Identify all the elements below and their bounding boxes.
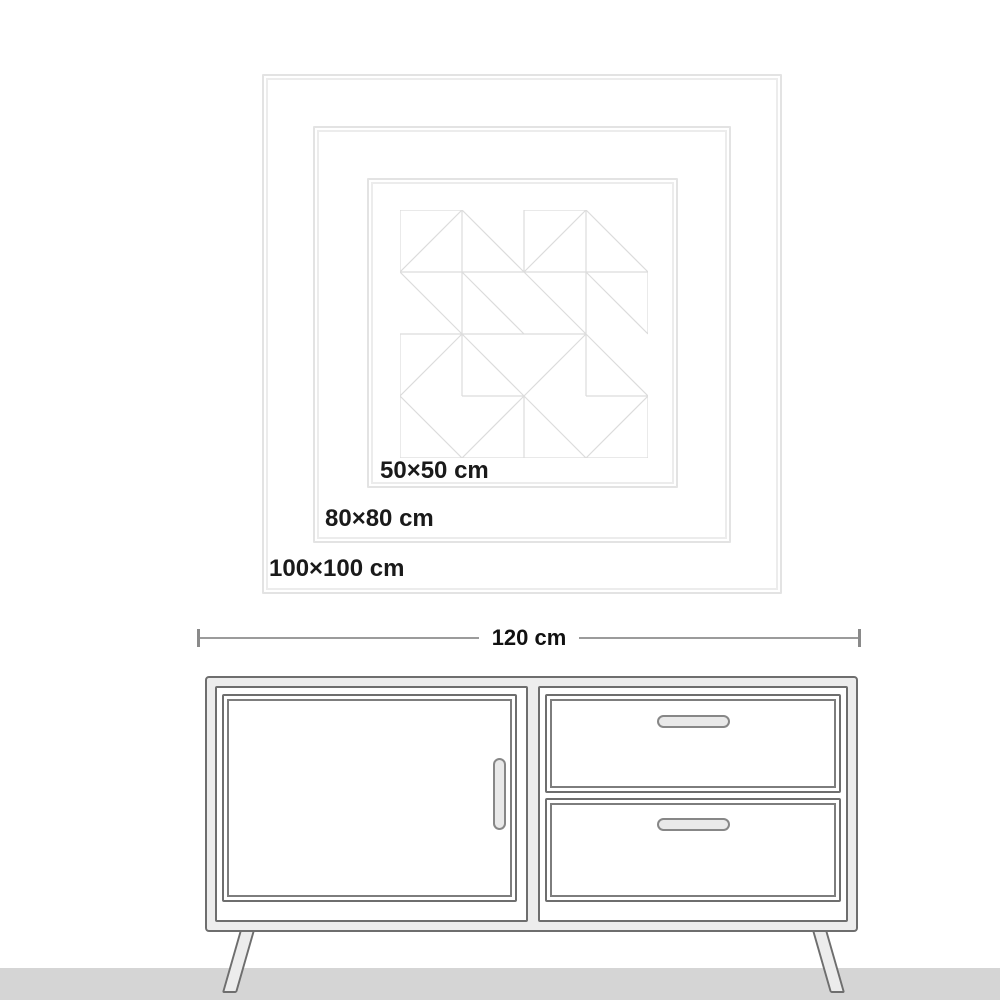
width-dimension-label-wrap: 120 cm [197,626,861,650]
size-label-80: 80×80 cm [325,507,434,531]
drawer-bottom-panel [545,798,841,902]
size-label-50: 50×50 cm [380,459,489,483]
pattern-lines [400,210,648,458]
drawer-bottom-handle [657,818,730,831]
width-dimension-label: 120 cm [479,626,580,650]
floor [0,968,1000,1000]
size-guide-illustration: 50×50 cm 80×80 cm 100×100 cm 120 cm [0,0,1000,1000]
size-label-100: 100×100 cm [269,557,404,581]
cabinet-door-panel [222,694,517,902]
drawer-top-panel [545,694,841,793]
drawer-top-handle [657,715,730,728]
door-handle [493,758,506,830]
geometric-pattern-artwork [400,210,648,458]
